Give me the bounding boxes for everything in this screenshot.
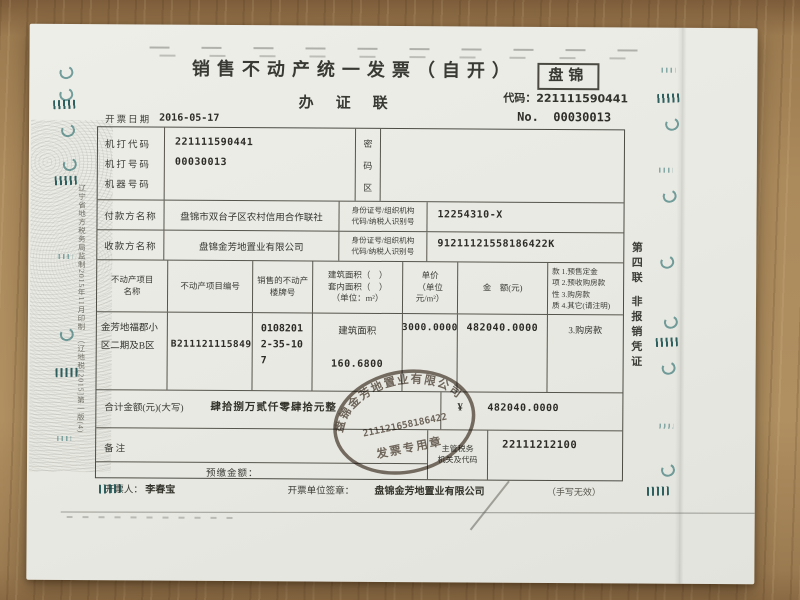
carbon-mark [57, 436, 71, 441]
machine-number-value: 00030013 [175, 157, 355, 169]
carbon-mark [659, 424, 673, 429]
payee-name: 盘锦金芳地置业有限公司 [163, 231, 338, 261]
paper-fold-line [674, 28, 686, 584]
carbon-mark [58, 254, 72, 259]
carbon-mark [656, 337, 678, 347]
payer-row: 付款方名称 盘锦市双台子区农村信用合作联社 身份证号/组织机构代码/纳税人识别号… [97, 199, 623, 232]
machine-code-row: 机打代码 机打号码 机器号码 221111590441 00030013 密 码… [98, 127, 624, 202]
print-authority-note: 辽宁省地方税务局监制2015年11月印制 （辽地税[2015]第一版(4) [75, 184, 88, 484]
carbon-mark [659, 254, 676, 271]
copy-number-note: 第四联 [628, 241, 644, 286]
carbon-mark [647, 486, 669, 496]
issue-date-label: 开票日期 [105, 115, 151, 125]
payment-nature-value: 3.购房款 [546, 315, 622, 392]
handwriting-invalid-note: （手写无效） [547, 487, 601, 497]
payee-row: 收款方名称 盘锦金芳地置业有限公司 身份证号/组织机构代码/纳税人识别号 912… [97, 229, 623, 262]
invoice-number-label: No. [517, 110, 539, 124]
payer-id-label-line1: 身份证号/组织机构 [352, 206, 415, 215]
password-char: 区 [363, 180, 372, 193]
payee-label: 收款方名称 [104, 238, 157, 252]
total-value: 482040.0000 [487, 403, 559, 414]
unit-price-value: 3000.0000 [402, 322, 457, 333]
carbon-mark [59, 122, 76, 139]
carbon-mark [53, 100, 75, 110]
col-project-name: 不动产项目名称 [97, 260, 167, 311]
machine-number-label: 机打号码 [105, 156, 164, 170]
payer-name: 盘锦市双台子区农村信用合作联社 [163, 201, 338, 231]
invoice-number: No. 00030013 [517, 110, 611, 125]
seal-number: 211121658186422 [362, 411, 448, 439]
issue-date: 开票日期2016-05-17 [105, 111, 219, 126]
copy-name: 办证联 [179, 91, 529, 114]
project-no-value: B21112111584904 [171, 339, 252, 351]
invoice-paper: 销售不动产统一发票（自开） 盘锦 代码：221111590441 办证联 No.… [26, 24, 757, 584]
payer-id-label-line2: 代码/纳税人识别号 [352, 216, 415, 225]
total-uppercase: 肆拾捌万贰仟零肆拾元整 [210, 399, 337, 415]
payer-label: 付款方名称 [104, 208, 157, 222]
unit-signature-label: 开票单位签章： [288, 486, 355, 496]
password-area [380, 129, 624, 202]
total-label: 合计金额(元)(大写) [104, 399, 183, 413]
carbon-mark [99, 484, 121, 494]
col-payment-nature: 款 1.预售定金 项 2.预收购房款 性 3.购房款 质 4.其它(请注明) [547, 263, 623, 314]
issue-date-value: 2016-05-17 [159, 113, 219, 124]
remark-label: 备注 [104, 440, 127, 454]
payer-id-label: 身份证号/组织机构代码/纳税人识别号 [338, 202, 426, 232]
tax-authority-value: 22111212100 [502, 439, 577, 451]
invoice-title: 销售不动产统一发票（自开） [119, 54, 589, 83]
payee-id-label: 身份证号/组织机构代码/纳税人识别号 [338, 232, 426, 262]
carbon-mark [661, 68, 675, 73]
invoice-number-value: 00030013 [553, 110, 611, 124]
non-reimbursement-note: 非报销凭证 [628, 295, 644, 370]
amount-value: 482040.0000 [466, 322, 538, 333]
carbon-mark [55, 368, 77, 378]
col-unit-price: 单价（单位元/m²） [402, 262, 457, 313]
carbon-mark [659, 168, 673, 173]
payee-id-value: 91211121558186422K [437, 238, 554, 250]
carbon-mark [58, 326, 75, 343]
property-header-row: 不动产项目名称 不动产项目编号 销售的不动产楼牌号 建筑面积（ ）套内面积（ ）… [97, 259, 623, 314]
issuer-value: 李春宝 [145, 484, 175, 495]
region-stamp-box: 盘锦 [537, 63, 599, 90]
machine-code-label: 机打代码 [105, 136, 164, 150]
carbon-mark [61, 156, 78, 173]
invoice-code-value: 221111590441 [536, 92, 628, 106]
password-char: 密 [363, 136, 372, 149]
carbon-mark [657, 93, 679, 103]
scan-fold-line [61, 511, 755, 513]
project-name-value: 金芳地福郡小区二期及B区 [96, 312, 166, 389]
seal-caption: 发票专用章 [374, 434, 444, 462]
address-value: 01082012-35-107 [251, 313, 311, 390]
unit-signature-value: 盘锦金芳地置业有限公司 [374, 486, 484, 498]
scan-speck-line [67, 516, 237, 519]
col-area: 建筑面积（ ）套内面积（ ）（单位：m²） [312, 262, 402, 314]
col-amount: 金 额(元) [457, 262, 547, 314]
payer-id-value: 12254310-X [438, 209, 503, 220]
password-char: 码 [363, 158, 372, 171]
carbon-mark [58, 64, 75, 81]
carbon-mark [55, 176, 77, 186]
prepaid-label: 预缴金额： [206, 465, 259, 479]
payee-id-label-line1: 身份证号/组织机构 [351, 236, 414, 245]
area-type: 建筑面积 [313, 323, 402, 338]
device-number-label: 机器号码 [105, 176, 164, 190]
footer-line: 开票人： 李春宝 开票单位签章： 盘锦金芳地置业有限公司 （手写无效） [105, 480, 665, 498]
password-area-label: 密 码 区 [355, 129, 380, 201]
machine-code-value: 221111590441 [175, 137, 355, 149]
col-project-no: 不动产项目编号 [167, 261, 252, 313]
col-address: 销售的不动产楼牌号 [252, 261, 312, 312]
payee-id-label-line2: 代码/纳税人识别号 [351, 246, 414, 255]
